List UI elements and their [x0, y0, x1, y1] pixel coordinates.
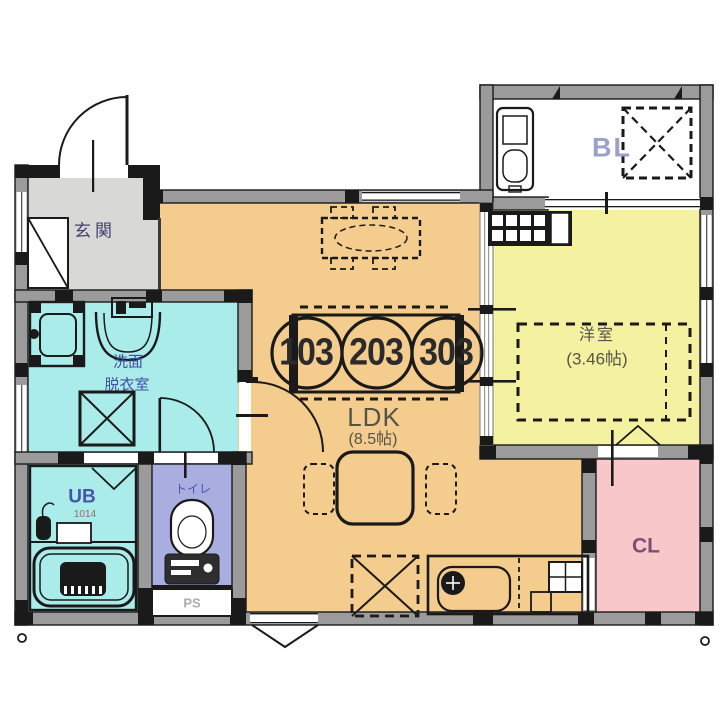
toilet-items: [165, 500, 219, 584]
door-frame-tick: [236, 414, 268, 417]
closet-label: CL: [632, 536, 660, 557]
pipe-space-label: PS: [183, 597, 200, 610]
entrance-door-tick: [92, 140, 94, 192]
closet-door-tick: [611, 430, 614, 486]
entrance-items: [28, 218, 68, 288]
dining-table-icon: [322, 207, 420, 269]
vanity-sink-icon: [96, 298, 160, 360]
ldk-area-label: (8.5帖): [349, 432, 398, 448]
refrigerator-space-icon: [352, 556, 418, 616]
unit-bath-size: 1014: [74, 510, 96, 520]
entrance-label: 玄関: [74, 223, 116, 240]
washer-pan-icon: [80, 392, 134, 445]
unit-number-203: 203: [349, 333, 403, 371]
counter-shelf-icon: [488, 211, 572, 246]
living-table-icon: [304, 452, 456, 524]
unit-number-103: 103: [279, 333, 333, 371]
balcony-left-wall: [480, 85, 493, 197]
unit-bath-label: UB: [68, 488, 95, 507]
toilet-door-leaf: [159, 398, 162, 452]
floor-plan: 玄関 洗面 脱衣室 トイレ UB 1014 PS LDK (8.5帖) 洋室 (…: [0, 0, 720, 720]
gas-stove-icon: [549, 562, 582, 592]
washroom-items: [29, 298, 160, 445]
bath-faucet: [57, 523, 91, 543]
toilet-label: トイレ: [175, 483, 211, 495]
western-room-items: [488, 211, 690, 420]
ac-outdoor-unit-space-icon: [623, 108, 691, 178]
ldk-items: [272, 207, 588, 616]
toilet-door-tick: [184, 452, 187, 478]
entrance-step-edge: [158, 218, 161, 290]
washroom-label-line2: 脱衣室: [104, 378, 149, 393]
kitchen-counter-icon: [428, 556, 588, 614]
shower-head-icon: [36, 516, 51, 540]
washroom-label-line1: 洗面: [113, 355, 143, 370]
unit-number-303: 303: [419, 333, 473, 371]
balcony-label: BL: [592, 135, 632, 162]
western-room-area-label: (3.46帖): [566, 351, 627, 368]
ldk-label: LDK: [347, 404, 401, 430]
entrance-door-leaf: [126, 95, 129, 165]
bath-folding-door: [92, 468, 136, 489]
toilet-door-arc: [160, 398, 214, 452]
entrance-top-wall: [15, 165, 152, 178]
washroom-door-stop: [246, 377, 258, 383]
bottom-wall: [15, 612, 713, 625]
western-top-wall: [493, 197, 548, 210]
washing-machine-icon: [29, 302, 84, 366]
bath-tub-icon: [34, 548, 134, 606]
closet-folding-door: [616, 426, 660, 445]
western-room-label: 洋室: [579, 328, 615, 344]
